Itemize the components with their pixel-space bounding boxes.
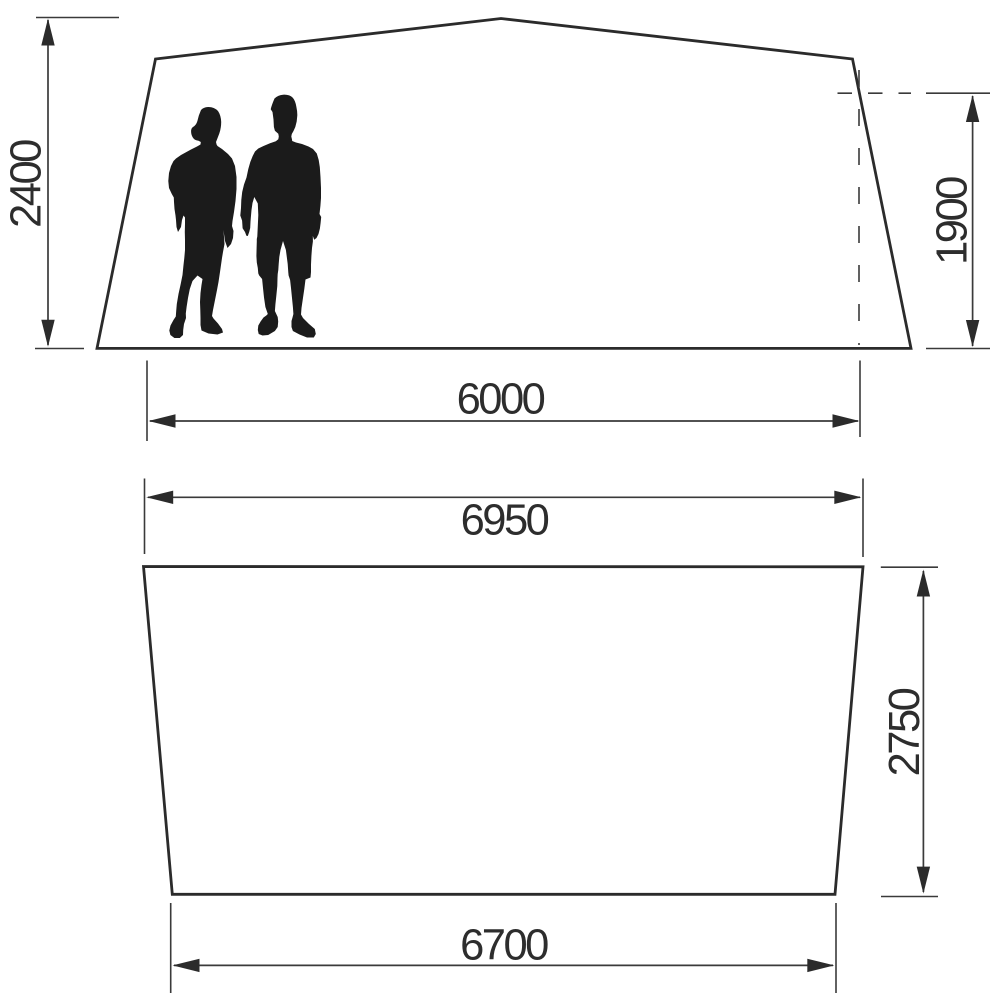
- svg-text:6000: 6000: [457, 376, 545, 424]
- svg-text:2400: 2400: [3, 140, 51, 228]
- svg-text:6950: 6950: [461, 497, 549, 545]
- svg-text:2750: 2750: [881, 688, 929, 776]
- svg-text:6700: 6700: [460, 922, 548, 970]
- svg-text:1900: 1900: [929, 177, 977, 265]
